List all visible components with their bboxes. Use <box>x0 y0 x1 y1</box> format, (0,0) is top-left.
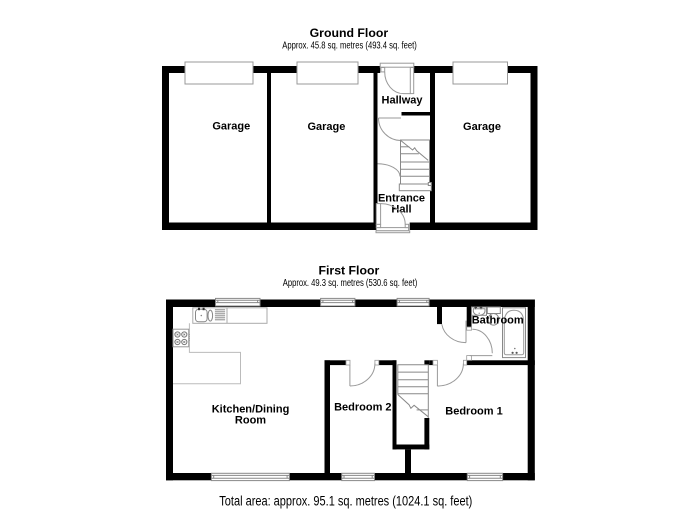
svg-text:Total area: approx. 95.1 sq. m: Total area: approx. 95.1 sq. metres (102… <box>219 493 472 508</box>
svg-text:Garage: Garage <box>307 121 345 133</box>
svg-text:Kitchen/Dining: Kitchen/Dining <box>212 403 290 415</box>
svg-text:Ground Floor: Ground Floor <box>310 26 389 40</box>
svg-text:Approx. 45.8 sq. metres (493.4: Approx. 45.8 sq. metres (493.4 sq. feet) <box>282 41 417 52</box>
svg-text:Bathroom: Bathroom <box>472 315 524 327</box>
svg-text:Garage: Garage <box>212 121 250 133</box>
svg-text:Room: Room <box>235 415 266 427</box>
svg-text:Bedroom 2: Bedroom 2 <box>334 402 391 414</box>
svg-text:Entrance: Entrance <box>378 192 425 204</box>
svg-text:Garage: Garage <box>463 121 501 133</box>
svg-text:Hallway: Hallway <box>382 95 424 107</box>
svg-text:Bedroom 1: Bedroom 1 <box>445 406 502 418</box>
svg-text:Approx. 49.3 sq. metres (530.6: Approx. 49.3 sq. metres (530.6 sq. feet) <box>283 278 418 289</box>
svg-text:First Floor: First Floor <box>318 263 379 277</box>
